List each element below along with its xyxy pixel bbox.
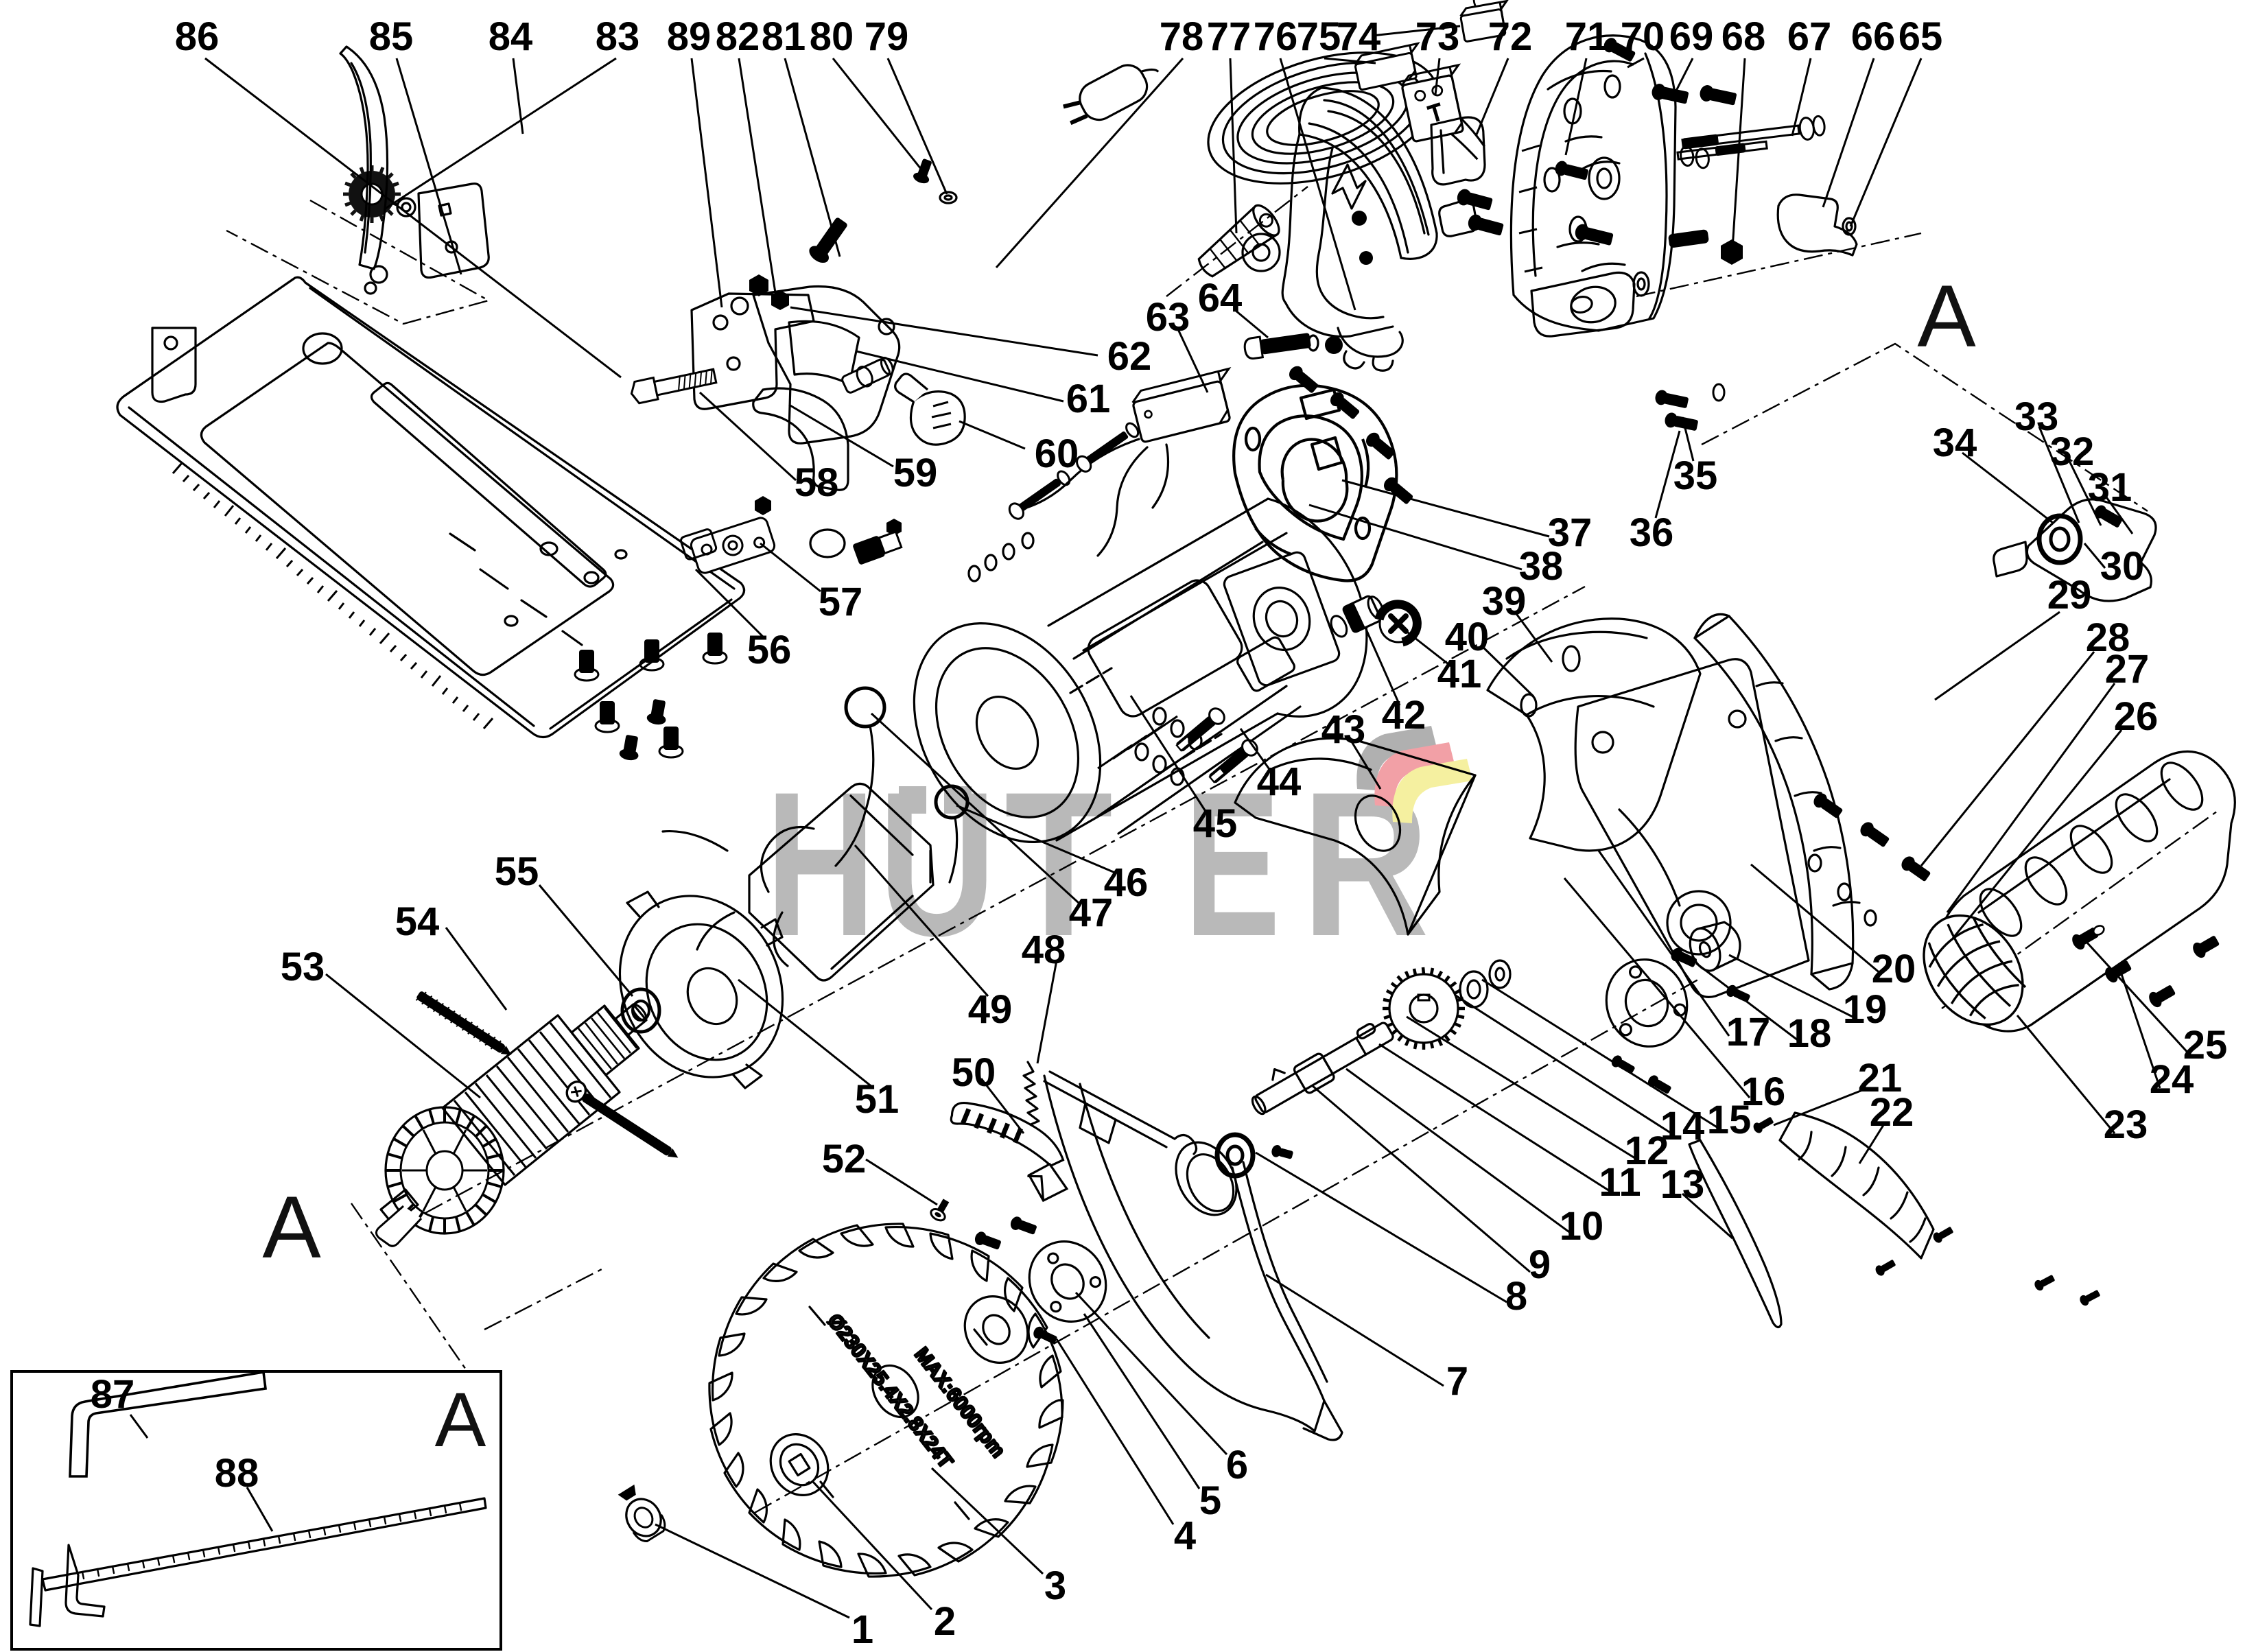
svg-text:7: 7: [1446, 1359, 1468, 1404]
svg-text:65: 65: [1899, 14, 1943, 59]
svg-text:49: 49: [968, 987, 1013, 1032]
svg-text:53: 53: [281, 945, 325, 989]
svg-text:66: 66: [1851, 14, 1896, 59]
svg-text:17: 17: [1726, 1010, 1771, 1054]
svg-text:76: 76: [1254, 14, 1298, 59]
svg-text:79: 79: [865, 14, 909, 59]
svg-text:9: 9: [1529, 1242, 1551, 1287]
svg-text:34: 34: [1933, 421, 1977, 465]
svg-text:59: 59: [893, 451, 938, 495]
svg-text:82: 82: [716, 14, 760, 59]
svg-text:54: 54: [395, 899, 440, 944]
svg-text:71: 71: [1565, 14, 1610, 59]
svg-text:10: 10: [1560, 1204, 1604, 1249]
svg-text:86: 86: [175, 14, 220, 59]
svg-text:88: 88: [215, 1451, 259, 1496]
svg-text:3: 3: [1044, 1563, 1066, 1608]
svg-text:70: 70: [1621, 14, 1665, 59]
svg-text:42: 42: [1382, 693, 1426, 737]
svg-text:67: 67: [1787, 14, 1832, 59]
svg-text:19: 19: [1843, 987, 1888, 1032]
svg-text:87: 87: [91, 1372, 135, 1417]
svg-text:30: 30: [2100, 544, 2145, 589]
svg-text:27: 27: [2105, 647, 2150, 692]
svg-text:43: 43: [1321, 707, 1366, 752]
svg-text:A: A: [1917, 268, 1976, 366]
svg-text:2: 2: [934, 1599, 956, 1644]
svg-text:37: 37: [1548, 510, 1592, 555]
svg-text:6: 6: [1226, 1443, 1248, 1487]
svg-text:23: 23: [2104, 1102, 2148, 1147]
svg-text:50: 50: [952, 1050, 996, 1095]
svg-text:21: 21: [1858, 1056, 1903, 1100]
svg-text:84: 84: [489, 14, 533, 59]
svg-text:64: 64: [1198, 276, 1243, 320]
svg-text:61: 61: [1066, 377, 1111, 421]
svg-text:89: 89: [667, 14, 712, 59]
svg-text:69: 69: [1669, 14, 1714, 59]
svg-text:5: 5: [1199, 1478, 1221, 1523]
svg-text:45: 45: [1193, 801, 1238, 846]
svg-text:48: 48: [1022, 928, 1066, 972]
svg-text:4: 4: [1174, 1513, 1196, 1558]
svg-text:1: 1: [851, 1607, 873, 1652]
svg-text:35: 35: [1673, 453, 1718, 498]
svg-text:72: 72: [1488, 14, 1533, 59]
svg-text:56: 56: [747, 628, 792, 672]
svg-text:75: 75: [1297, 14, 1341, 59]
svg-text:15: 15: [1707, 1098, 1752, 1142]
svg-text:11: 11: [1599, 1160, 1641, 1205]
svg-text:58: 58: [795, 460, 839, 505]
svg-text:52: 52: [822, 1137, 867, 1181]
svg-text:18: 18: [1787, 1011, 1832, 1056]
svg-text:78: 78: [1160, 14, 1204, 59]
svg-text:77: 77: [1207, 14, 1251, 59]
svg-text:46: 46: [1104, 860, 1149, 905]
svg-text:81: 81: [762, 14, 806, 59]
svg-text:26: 26: [2114, 694, 2159, 739]
svg-text:A: A: [262, 1179, 321, 1277]
svg-text:44: 44: [1257, 759, 1302, 804]
svg-text:73: 73: [1415, 14, 1460, 59]
svg-text:29: 29: [2047, 573, 2092, 617]
svg-text:U: U: [878, 748, 996, 979]
svg-text:24: 24: [2150, 1057, 2194, 1102]
svg-text:68: 68: [1721, 14, 1766, 59]
svg-text:85: 85: [369, 14, 414, 59]
svg-text:8: 8: [1505, 1274, 1527, 1319]
svg-text:20: 20: [1872, 947, 1916, 991]
svg-text:60: 60: [1035, 432, 1079, 476]
svg-text:51: 51: [855, 1077, 900, 1122]
svg-text:A: A: [435, 1377, 486, 1463]
svg-text:55: 55: [495, 849, 539, 894]
svg-text:63: 63: [1146, 295, 1190, 340]
svg-text:80: 80: [810, 14, 854, 59]
svg-text:31: 31: [2088, 465, 2132, 510]
svg-text:62: 62: [1107, 334, 1152, 379]
svg-text:57: 57: [819, 580, 863, 624]
svg-text:74: 74: [1337, 14, 1381, 59]
svg-text:83: 83: [596, 14, 640, 59]
svg-text:36: 36: [1630, 510, 1674, 555]
